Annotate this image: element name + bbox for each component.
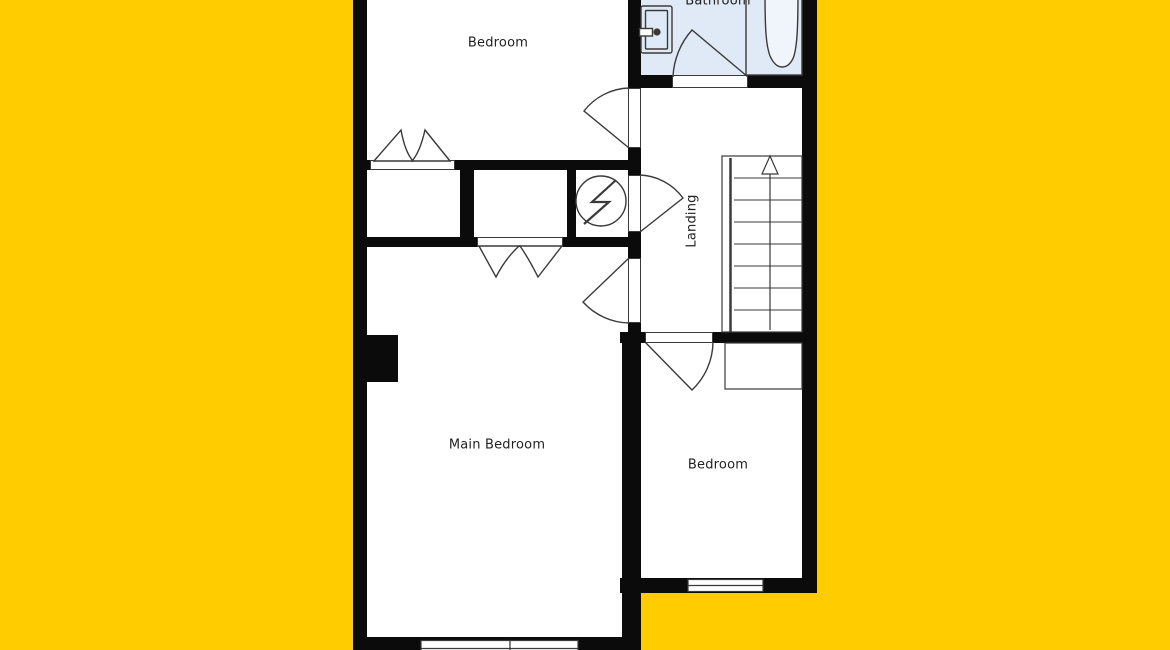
window-main-bedroom-2 [510, 641, 578, 650]
door-swing-cupboard [640, 175, 683, 232]
room-label-landing: Landing [685, 194, 700, 247]
plan-symbols [0, 0, 1170, 650]
stair-void [725, 343, 802, 389]
window-bedroom-bottom [688, 580, 763, 592]
door-swing-bathroom [673, 30, 748, 77]
bifold-door-mid [479, 246, 562, 277]
floor-plan: Bedroom Bathroom Landing Main Bedroom Be… [0, 0, 1170, 650]
cylinder-cupboard-symbol [576, 176, 626, 226]
window-main-bedroom-1 [421, 641, 510, 650]
door-swing-bedroom-top [584, 88, 629, 148]
staircase [722, 156, 802, 389]
bathtub-icon [746, 0, 802, 75]
room-label-bathroom: Bathroom [685, 0, 750, 9]
bifold-door-top [374, 130, 450, 161]
door-swing-main-bedroom [583, 258, 629, 323]
room-label-main-bedroom: Main Bedroom [449, 438, 545, 453]
room-label-bedroom-top: Bedroom [468, 36, 528, 51]
sink-icon [640, 6, 673, 53]
door-swing-bedroom-bottom [645, 342, 713, 390]
room-label-bedroom-bottom: Bedroom [688, 458, 748, 473]
